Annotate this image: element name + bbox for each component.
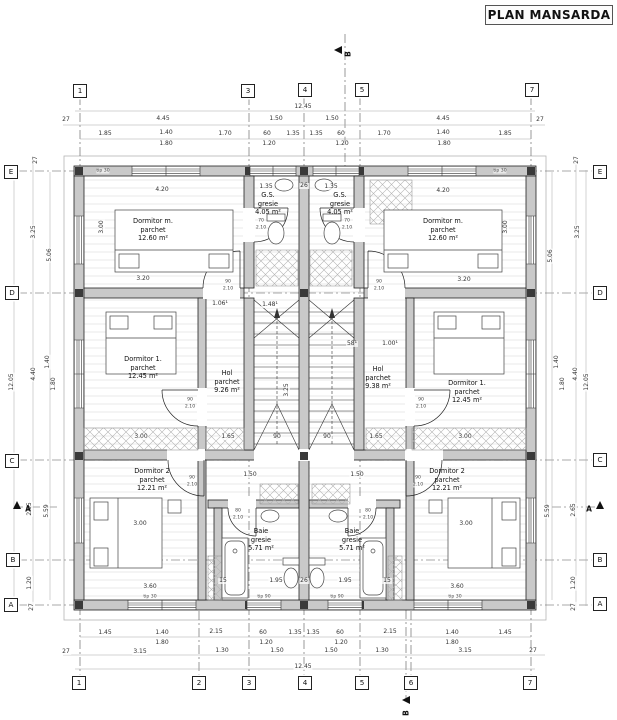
plan-title: PLAN MANSARDA — [485, 5, 613, 25]
plan-drawing — [0, 0, 617, 720]
plan-title-text: PLAN MANSARDA — [488, 8, 611, 22]
floor-plan-canvas: 12.45274.451.501.504.45271.851.401.70601… — [0, 0, 617, 720]
